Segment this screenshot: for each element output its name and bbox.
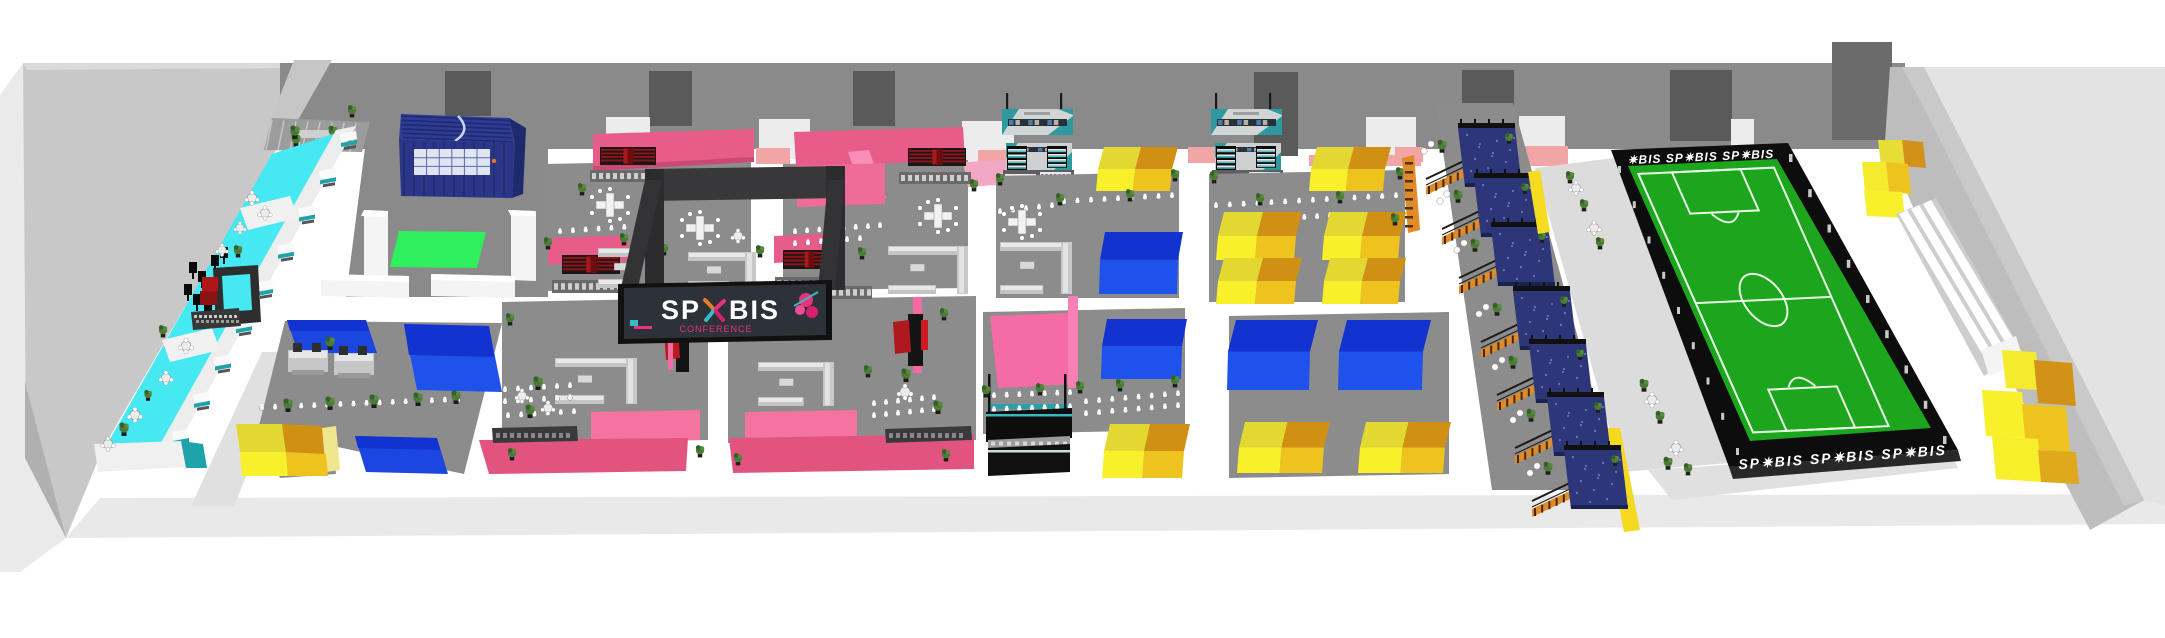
svg-text:BIS: BIS — [729, 295, 780, 325]
svg-text:CONFERENCE: CONFERENCE — [679, 324, 752, 334]
svg-text:SP: SP — [661, 295, 701, 325]
